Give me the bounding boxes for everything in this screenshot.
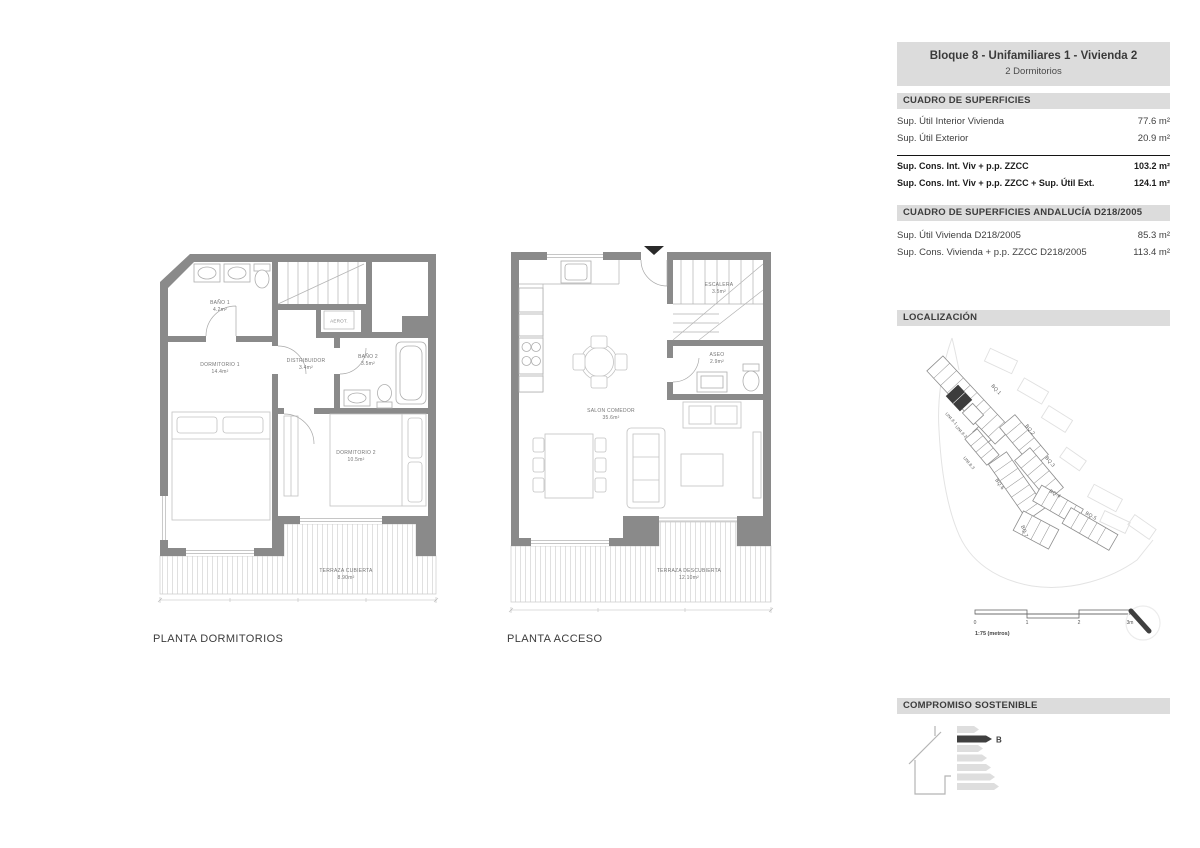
plan-title-dormitorios: PLANTA DORMITORIOS: [153, 633, 283, 645]
dimension-line: [509, 607, 773, 613]
coffee-table: [681, 454, 723, 486]
section-sustainability: COMPROMISO SOSTENIBLE: [897, 698, 1170, 714]
project-buildings: [921, 356, 1118, 550]
room-area-dormitorio1: 14.4m²: [211, 369, 228, 375]
entrance: [641, 246, 667, 286]
room-label-dormitorio1: DORMITORIO 1: [200, 362, 240, 368]
unit-title: Bloque 8 - Unifamiliares 1 - Vivienda 2: [897, 42, 1170, 62]
site-label-uni82: UNI.8.2: [954, 424, 968, 439]
dimension-line: [158, 597, 438, 603]
site-label-uni83: UNI.8.3: [962, 455, 976, 470]
stairs: [673, 260, 763, 340]
aseo-fixtures: [697, 364, 759, 392]
scale-bar: [975, 610, 1130, 618]
unit-subtitle: 2 Dormitorios: [897, 66, 1170, 77]
floorplan-dormitorios: AEROT.: [150, 246, 462, 606]
energy-rating-icon: B: [903, 720, 1083, 798]
toilet-bowl: [743, 371, 759, 391]
terrace-cubierta-area: [160, 524, 436, 594]
surface-total-row: Sup. Cons. Int. Viv + p.p. ZZCC + Sup. Ú…: [897, 178, 1170, 188]
scale-tick-3: 3m: [1127, 620, 1134, 626]
surface-row: Sup. Útil Exterior 20.9 m²: [897, 133, 1170, 144]
room-label-distribuidor: DISTRIBUIDOR: [287, 358, 326, 364]
room-area-terraza: 8.90m²: [337, 575, 354, 581]
room-area-dormitorio2: 10.5m²: [347, 457, 364, 463]
section-surfaces: CUADRO DE SUPERFICIES: [897, 93, 1170, 109]
house-icon: [909, 726, 951, 794]
scale-caption: 1:75 (metros): [975, 631, 1010, 637]
room-label-bano2: BAÑO 2: [358, 353, 378, 360]
aerot-closet: AEROT.: [324, 311, 354, 329]
totals-divider: [897, 155, 1170, 156]
tv-unit: [753, 432, 761, 498]
stove: [519, 338, 543, 374]
surface-total-row: Sup. Cons. Int. Viv + p.p. ZZCC 103.2 m²: [897, 161, 1170, 171]
room-label-terraza-desc: TERRAZA DESCUBIERTA: [657, 568, 722, 574]
room-label-bano1: BAÑO 1: [210, 299, 230, 306]
room-area-bano1: 4.2m²: [213, 307, 227, 313]
toilet-bowl: [255, 270, 269, 288]
surface-row: Sup. Útil Vivienda D218/2005 85.3 m²: [897, 230, 1170, 241]
room-area-salon: 35.6m²: [602, 415, 619, 421]
stairs: [278, 262, 364, 304]
room-area-terraza-desc: 12.10m²: [679, 575, 699, 581]
room-label-aerot: AEROT.: [330, 319, 348, 324]
energy-rating-letter: B: [996, 736, 1002, 745]
room-area-distribuidor: 3.4m²: [299, 365, 313, 371]
room-area-escalera: 3.5m²: [712, 289, 726, 295]
section-localizacion: LOCALIZACIÓN: [897, 310, 1170, 326]
bathroom2-fixtures: [344, 342, 426, 408]
dining-round-table: [573, 336, 627, 388]
living-furniture: [533, 402, 761, 508]
room-label-salon: SALON COMEDOR: [587, 408, 635, 414]
site-label-bq1: BQ.1: [990, 383, 1003, 396]
energy-bars: B: [957, 726, 1002, 790]
room-area-bano2: 3.5m²: [361, 361, 375, 367]
dining-table: [545, 434, 593, 498]
section-andalucia: CUADRO DE SUPERFICIES ANDALUCÍA D218/200…: [897, 205, 1170, 221]
floorplan-acceso: ESCALERA 3.5m² ASEO 2.9m² SALON COMEDOR …: [503, 244, 778, 616]
surface-row: Sup. Útil Interior Vivienda 77.6 m²: [897, 116, 1170, 127]
toilet-tank: [743, 364, 759, 371]
surface-row: Sup. Cons. Vivienda + p.p. ZZCC D218/200…: [897, 247, 1170, 258]
room-label-dormitorio2: DORMITORIO 2: [336, 450, 376, 456]
energy-bar-b: [957, 736, 992, 743]
toilet-bowl: [378, 385, 392, 402]
site-building-bq7: [1013, 511, 1059, 549]
room-label-escalera: ESCALERA: [705, 282, 734, 288]
scale-tick-0: 0: [974, 620, 977, 626]
map-scale: 0 1 2 3m 1:75 (metros): [897, 602, 1170, 650]
toilet-tank: [377, 402, 392, 408]
bed-dormitorio1: [172, 412, 270, 520]
floor-plan-document: AEROT.: [0, 0, 1200, 848]
plan-title-acceso: PLANTA ACCESO: [507, 633, 602, 645]
unit-header: Bloque 8 - Unifamiliares 1 - Vivienda 2 …: [897, 42, 1170, 86]
scale-tick-1: 1: [1026, 620, 1029, 626]
info-sidebar: Bloque 8 - Unifamiliares 1 - Vivienda 2 …: [897, 0, 1170, 848]
bathroom1-fixtures: [194, 264, 270, 288]
aseo-door-arc: [673, 358, 699, 382]
room-label-terraza: TERRAZA CUBIERTA: [319, 568, 373, 574]
entrance-marker: [644, 246, 664, 255]
site-label-uni81: UNI.8.1: [944, 411, 958, 426]
room-label-aseo: ASEO: [710, 352, 725, 358]
scale-tick-2: 2: [1078, 620, 1081, 626]
room-area-aseo: 2.9m²: [710, 359, 724, 365]
site-map: BQ.1 UNI.8.1 UNI.8.2 UNI.8.3 BQ.2 BQ.3 B…: [897, 330, 1170, 602]
